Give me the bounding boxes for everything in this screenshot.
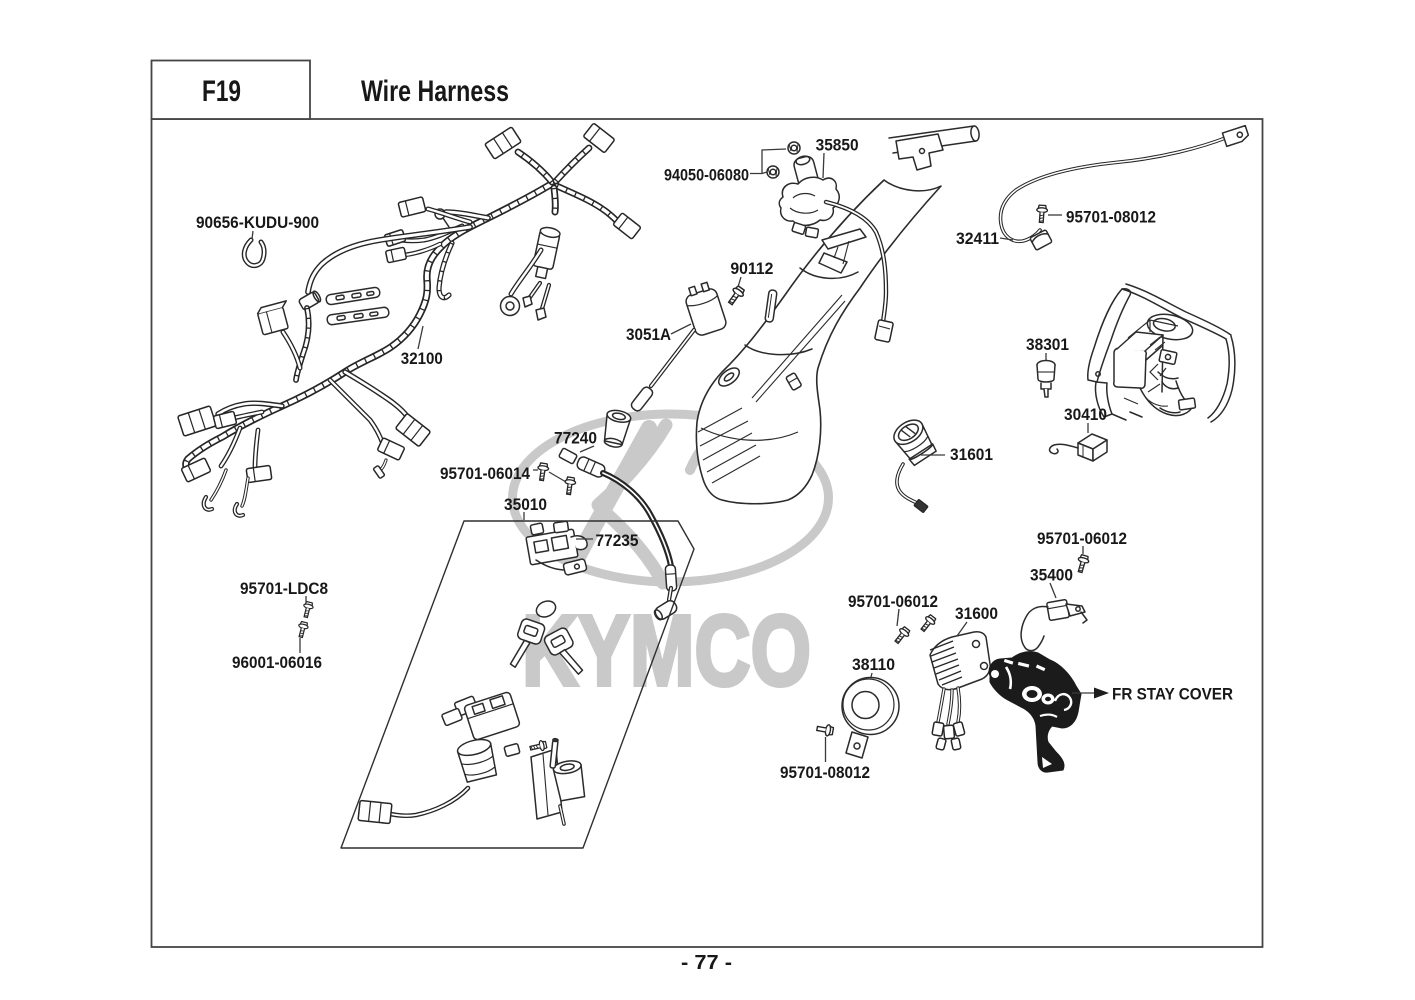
svg-text:94050-06080: 94050-06080 xyxy=(664,166,749,185)
svg-text:Wire Harness: Wire Harness xyxy=(361,75,509,108)
svg-text:F19: F19 xyxy=(202,75,241,108)
svg-text:77240: 77240 xyxy=(554,429,597,448)
svg-text:FR STAY COVER: FR STAY COVER xyxy=(1112,685,1233,704)
svg-text:95701-08012: 95701-08012 xyxy=(1066,208,1156,227)
svg-text:35850: 35850 xyxy=(816,136,859,155)
svg-text:35400: 35400 xyxy=(1030,566,1073,585)
svg-text:31600: 31600 xyxy=(955,604,998,623)
svg-text:96001-06016: 96001-06016 xyxy=(232,653,322,672)
svg-text:95701-LDC8: 95701-LDC8 xyxy=(240,579,328,598)
svg-text:31601: 31601 xyxy=(950,445,993,464)
svg-text:- 77 -: - 77 - xyxy=(681,952,732,974)
svg-text:77235: 77235 xyxy=(596,531,639,550)
svg-text:35010: 35010 xyxy=(504,495,547,514)
svg-text:32411: 32411 xyxy=(956,229,999,248)
svg-text:38301: 38301 xyxy=(1026,335,1069,354)
svg-text:95701-06012: 95701-06012 xyxy=(1037,529,1127,548)
svg-text:3051A: 3051A xyxy=(626,325,671,344)
svg-text:30410: 30410 xyxy=(1064,405,1107,424)
svg-text:95701-08012: 95701-08012 xyxy=(780,763,870,782)
svg-text:38110: 38110 xyxy=(852,655,895,674)
svg-text:32100: 32100 xyxy=(401,349,443,368)
svg-text:90656-KUDU-900: 90656-KUDU-900 xyxy=(196,213,319,232)
svg-text:95701-06014: 95701-06014 xyxy=(440,464,530,483)
svg-text:95701-06012: 95701-06012 xyxy=(848,592,938,611)
svg-text:90112: 90112 xyxy=(730,259,773,278)
